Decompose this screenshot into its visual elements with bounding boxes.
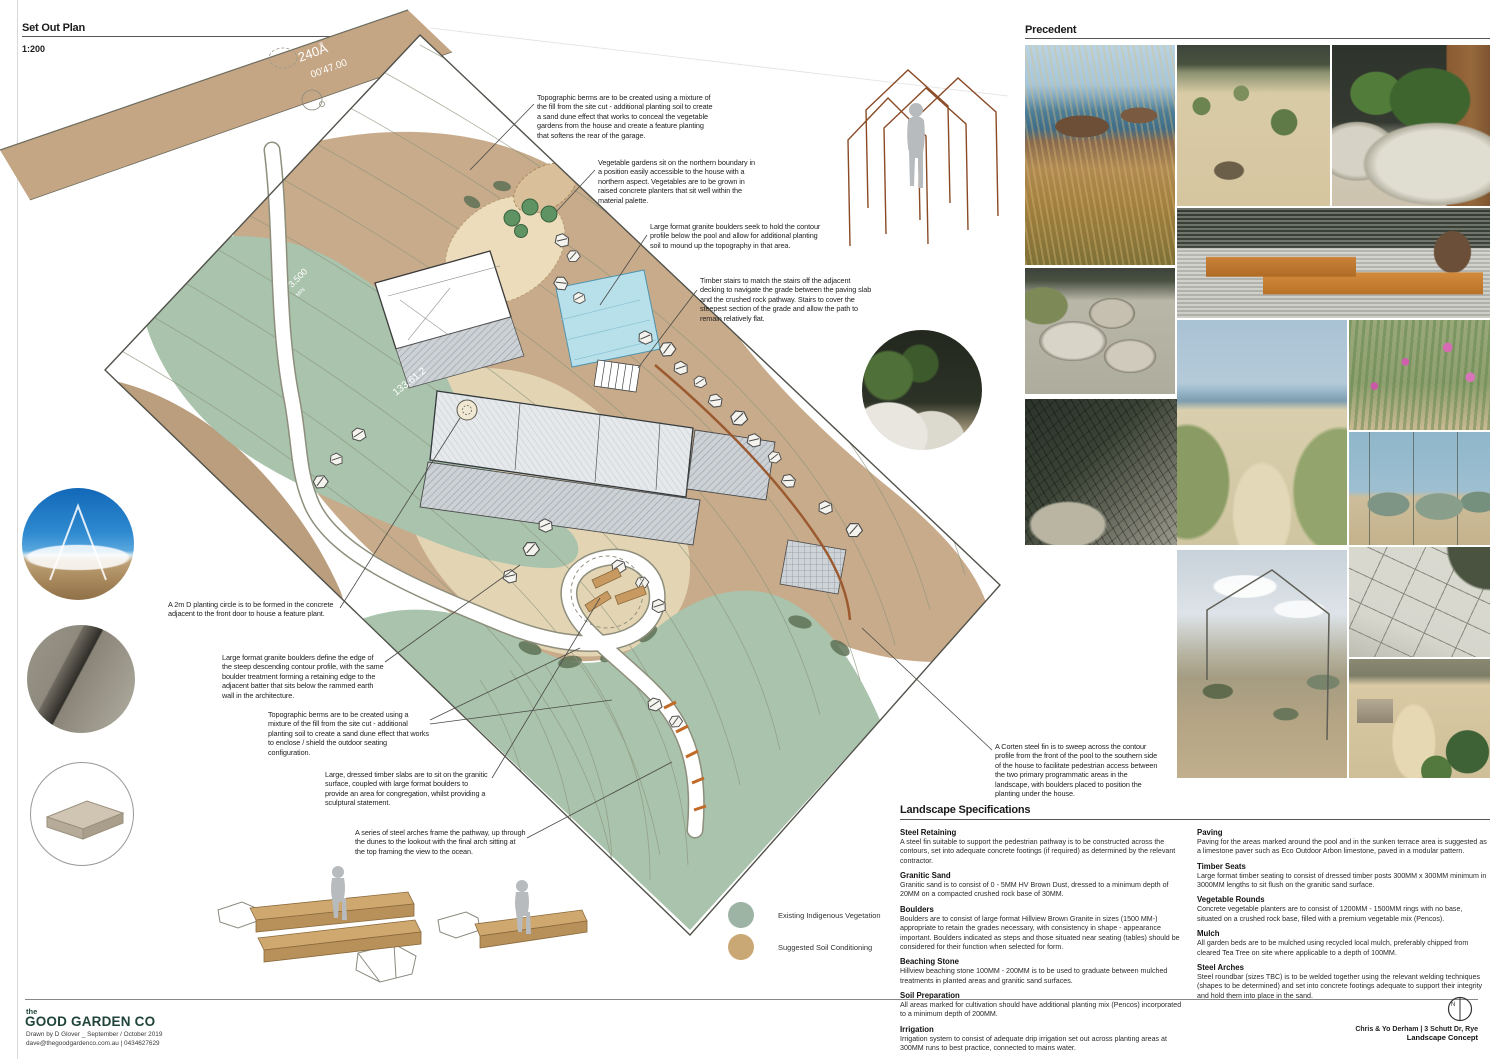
limestone-paver-photo [30, 762, 134, 866]
spec-soil-preparation: Soil PreparationAll areas marked for cul… [900, 991, 1188, 1020]
precedent-title: Precedent [1025, 24, 1076, 36]
footer-rule [25, 999, 1478, 1000]
legend-label-vegetation: Existing Indigenous Vegetation [778, 911, 881, 920]
legend-existing-vegetation: Existing Indigenous Vegetation [728, 902, 881, 928]
steel-arch-dune-photo [22, 488, 134, 600]
document-type: Landscape Concept [1178, 1033, 1478, 1042]
person-silhouette [907, 103, 925, 188]
pool [556, 270, 660, 367]
legend-swatch-vegetation [728, 902, 754, 928]
spec-steel-retaining: Steel RetainingA steel fin suitable to s… [900, 828, 1188, 866]
client-address: Chris & Yo Derham | 3 Schutt Dr, Rye [1178, 1026, 1478, 1033]
annotation-berms-outdoor-seating: Topographic berms are to be created usin… [268, 710, 430, 757]
contact-credit: dave@thegoodgardenco.com.au | 0434627629 [26, 1040, 160, 1047]
spec-granitic-sand: Granitic SandGranitic sand is to consist… [900, 871, 1188, 900]
legend-swatch-soil [728, 934, 754, 960]
annotation-vegetable-gardens: Vegetable gardens sit on the northern bo… [598, 158, 760, 205]
annotation-boulders-below-pool: Large format granite boulders seek to ho… [650, 222, 828, 250]
specifications-title: Landscape Specifications [900, 804, 1030, 816]
spec-beaching-stone: Beaching StoneHillview beaching stone 10… [900, 957, 1188, 986]
spec-paving: PavingPaving for the areas marked around… [1197, 828, 1488, 857]
timber-stairs [594, 360, 640, 392]
spec-timber-seats: Timber SeatsLarge format timber seating … [1197, 862, 1488, 891]
annotation-corten-fin: A Corten steel fin is to sweep across th… [995, 742, 1162, 799]
timber-bench-sketch [190, 858, 590, 998]
drawing-sheet: Set Out Plan 1:200 [0, 0, 1500, 1059]
company-logo: GOOD GARDEN CO [25, 1014, 155, 1029]
annotation-timber-slabs: Large, dressed timber slabs are to sit o… [325, 770, 492, 808]
precedent-photo-dune-path-to-ocean [1177, 320, 1347, 545]
precedent-photo-boulder-outcrop-garden [1025, 268, 1175, 394]
drawn-by-credit: Drawn by D Glover _ September / October … [26, 1031, 162, 1038]
legend-soil-conditioning: Suggested Soil Conditioning [728, 934, 872, 960]
spec-irrigation: IrrigationIrrigation system to consist o… [900, 1025, 1188, 1054]
annotation-boulder-retaining-edge: Large format granite boulders define the… [222, 653, 384, 700]
precedent-photo-concrete-vegetable-planters [1332, 45, 1490, 206]
specifications-right-column: PavingPaving for the areas marked around… [1197, 828, 1488, 1001]
specifications-rule [900, 819, 1490, 820]
timber-post-gravel-photo [27, 625, 135, 733]
annotation-steel-arches-path: A series of steel arches frame the pathw… [355, 828, 527, 856]
courtyard-planters-photo [862, 330, 982, 450]
annotation-topographic-berms-garage: Topographic berms are to be created usin… [537, 93, 715, 140]
precedent-photo-agave-flower-spikes [1349, 432, 1490, 545]
steel-arches-sketch [838, 48, 1013, 248]
precedent-rule [1025, 38, 1490, 39]
specifications-left-column: Steel RetainingA steel fin suitable to s… [900, 828, 1188, 1053]
precedent-photo-gravel-path-gabions [1349, 659, 1490, 778]
precedent-photo-pigface-groundcover [1349, 320, 1490, 430]
svg-text:N: N [1451, 1002, 1455, 1008]
spec-boulders: BouldersBoulders are to consist of large… [900, 905, 1188, 952]
precedent-photo-timber-bench-seating [1177, 208, 1490, 318]
precedent-photo-coastal-dune-beach [1025, 45, 1175, 265]
north-arrow: N [1438, 995, 1482, 1029]
precedent-photo-native-sand-garden [1177, 45, 1330, 206]
feature-planting-circle [457, 400, 477, 420]
spa-terrace [780, 540, 846, 594]
spec-vegetable-rounds: Vegetable RoundsConcrete vegetable plant… [1197, 895, 1488, 924]
precedent-photo-limestone-paving [1349, 547, 1490, 657]
east-terrace [687, 430, 775, 500]
title-block: Chris & Yo Derham | 3 Schutt Dr, Rye Lan… [1178, 1026, 1478, 1042]
legend-label-soil: Suggested Soil Conditioning [778, 943, 872, 952]
precedent-photo-steel-arch-sculpture-desert [1177, 550, 1347, 778]
annotation-timber-stairs: Timber stairs to match the stairs off th… [700, 276, 872, 323]
spec-mulch: MulchAll garden beds are to be mulched u… [1197, 929, 1488, 958]
precedent-photo-moonah-tree-canopy [1025, 399, 1178, 545]
annotation-planting-circle: A 2m D planting circle is to be formed i… [168, 600, 340, 619]
